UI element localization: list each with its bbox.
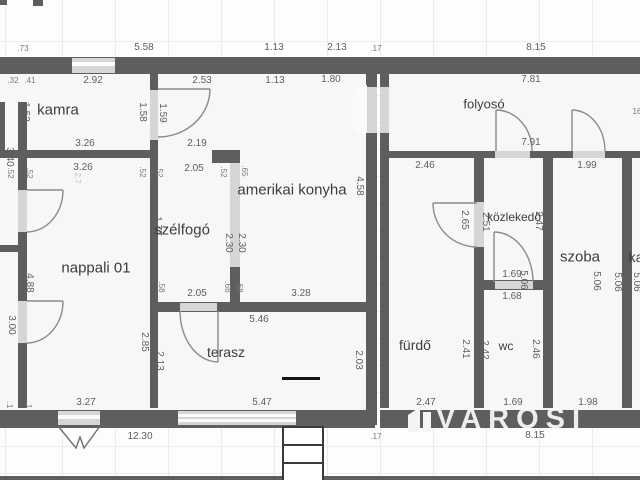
room-label-terasz: terasz <box>207 345 245 359</box>
dim-label: 1.80 <box>321 75 340 85</box>
dim-label: 5.06 <box>591 271 601 290</box>
watermark-text: VAROSI <box>436 403 587 435</box>
nappali-door-opening <box>18 301 27 343</box>
furdo-kozlekedo-wall <box>474 158 484 408</box>
dim-label: 1.59 <box>157 103 167 122</box>
dim-label: 1.69 <box>502 270 521 280</box>
dim-label: 1.99 <box>577 161 596 171</box>
door-swing-blob <box>351 85 367 133</box>
edge-artifact <box>0 0 7 5</box>
window-glass-line <box>58 415 100 419</box>
room-label-szoba: szoba <box>560 250 600 265</box>
dim-label: 1.77 <box>152 216 162 235</box>
folyoso-door-opening <box>495 151 530 158</box>
folyoso-door-opening <box>573 151 605 158</box>
dim-label: 3.28 <box>291 289 310 299</box>
dim-label: 2.53 <box>192 76 211 86</box>
floor-plan: VAROSI kamra szélfogó nappali 01 amerika… <box>0 0 640 480</box>
dim-label: 5.06 <box>379 271 389 290</box>
dim-label: .41 <box>24 77 35 85</box>
dim-label: 3.27 <box>76 398 95 408</box>
dim-label: 2.42 <box>479 340 489 359</box>
dim-label: .32 <box>7 77 18 85</box>
dim-label: 2.05 <box>187 289 206 299</box>
room-label-wc: wc <box>499 340 514 352</box>
dim-label: 2.19 <box>187 139 206 149</box>
dim-label: 1.13 <box>264 43 283 53</box>
dim-label: 5.46 <box>249 315 268 325</box>
dim-label: 5.06 <box>631 272 640 291</box>
dim-label: 1.52 <box>20 102 30 121</box>
dim-label: 4.58 <box>354 176 364 195</box>
edge-artifact <box>33 0 43 6</box>
left-wall-stub <box>0 245 18 252</box>
dim-label: 3.00 <box>6 315 16 334</box>
dim-label: .17 <box>370 45 381 53</box>
dim-label: .68 <box>235 281 243 292</box>
dim-label: .65 <box>240 165 248 176</box>
dim-label: 4.88 <box>24 273 34 292</box>
window-glass-line <box>178 419 296 422</box>
watermark: VAROSI <box>402 403 640 435</box>
room-label-kamra: kamra <box>37 103 79 118</box>
nappali-door-opening <box>18 190 27 232</box>
dim-label: 2.7 <box>73 172 81 183</box>
dim-label: 2.41 <box>460 339 470 358</box>
dim-label: .52 <box>219 166 227 177</box>
right-building-floor <box>380 57 640 428</box>
room-label-folyoso: folyosó <box>463 98 504 111</box>
dim-label: 3.40 <box>4 147 14 166</box>
room-label-konyha: amerikai konyha <box>237 183 346 198</box>
stairs-symbol <box>282 426 324 480</box>
room-label-nappali: nappali 01 <box>61 261 130 276</box>
dim-label: .1 <box>24 402 32 409</box>
konyha-folyoso-opening <box>366 87 377 133</box>
dim-label: 2.03 <box>353 350 363 369</box>
room-label-furdo: fürdő <box>399 338 431 352</box>
varosi-logo-icon <box>402 405 436 433</box>
dim-label: 7.81 <box>521 75 540 85</box>
dim-label: 5.47 <box>252 398 271 408</box>
dim-label: 1.68 <box>502 292 521 302</box>
dim-label: 1.58 <box>137 102 147 121</box>
dim-label: 2.65 <box>459 210 469 229</box>
dim-label: 3.26 <box>75 139 94 149</box>
terasz-door-opening <box>180 303 217 311</box>
dim-label: .68 <box>223 281 231 292</box>
dim-label: 2.46 <box>415 161 434 171</box>
dim-label: 2.46 <box>530 339 540 358</box>
dim-label: 2.13 <box>327 43 346 53</box>
window-glass-line <box>72 62 115 66</box>
dim-label: 2.30 <box>236 233 246 252</box>
dim-label: 2.05 <box>184 164 203 174</box>
dim-label: .52 <box>138 166 146 177</box>
left-exterior-wall <box>18 102 27 408</box>
dim-label: 2.47 <box>533 211 543 230</box>
dim-label: .1 <box>5 402 13 409</box>
dim-label: 2.30 <box>223 233 233 252</box>
dim-label: .52 <box>25 167 33 178</box>
konyha-folyoso-opening <box>380 87 389 133</box>
dim-label: .17 <box>370 433 381 441</box>
dim-label: 12.30 <box>127 432 152 442</box>
window-glass-line <box>178 414 296 417</box>
dim-label: 7.91 <box>521 138 540 148</box>
dim-label: 2.85 <box>139 332 149 351</box>
dim-label: 2.13 <box>154 351 164 370</box>
dim-label: 1.13 <box>265 76 284 86</box>
dim-label: 16 <box>633 108 640 116</box>
dim-label: 2.92 <box>83 76 102 86</box>
dim-label: 8.15 <box>526 43 545 53</box>
window-arrow-icon <box>58 426 100 448</box>
dim-label: .52 <box>6 167 14 178</box>
dim-label: 2.51 <box>480 212 490 231</box>
kozlekedo-szoba-wall <box>543 158 553 408</box>
room-label-kazan: ka <box>629 250 640 264</box>
dim-label: 5.58 <box>134 43 153 53</box>
dim-label: .52 <box>155 166 163 177</box>
dim-label: .58 <box>157 281 165 292</box>
dim-label: .73 <box>17 45 28 53</box>
dim-label: 5.06 <box>612 272 622 291</box>
step-line <box>282 377 320 380</box>
